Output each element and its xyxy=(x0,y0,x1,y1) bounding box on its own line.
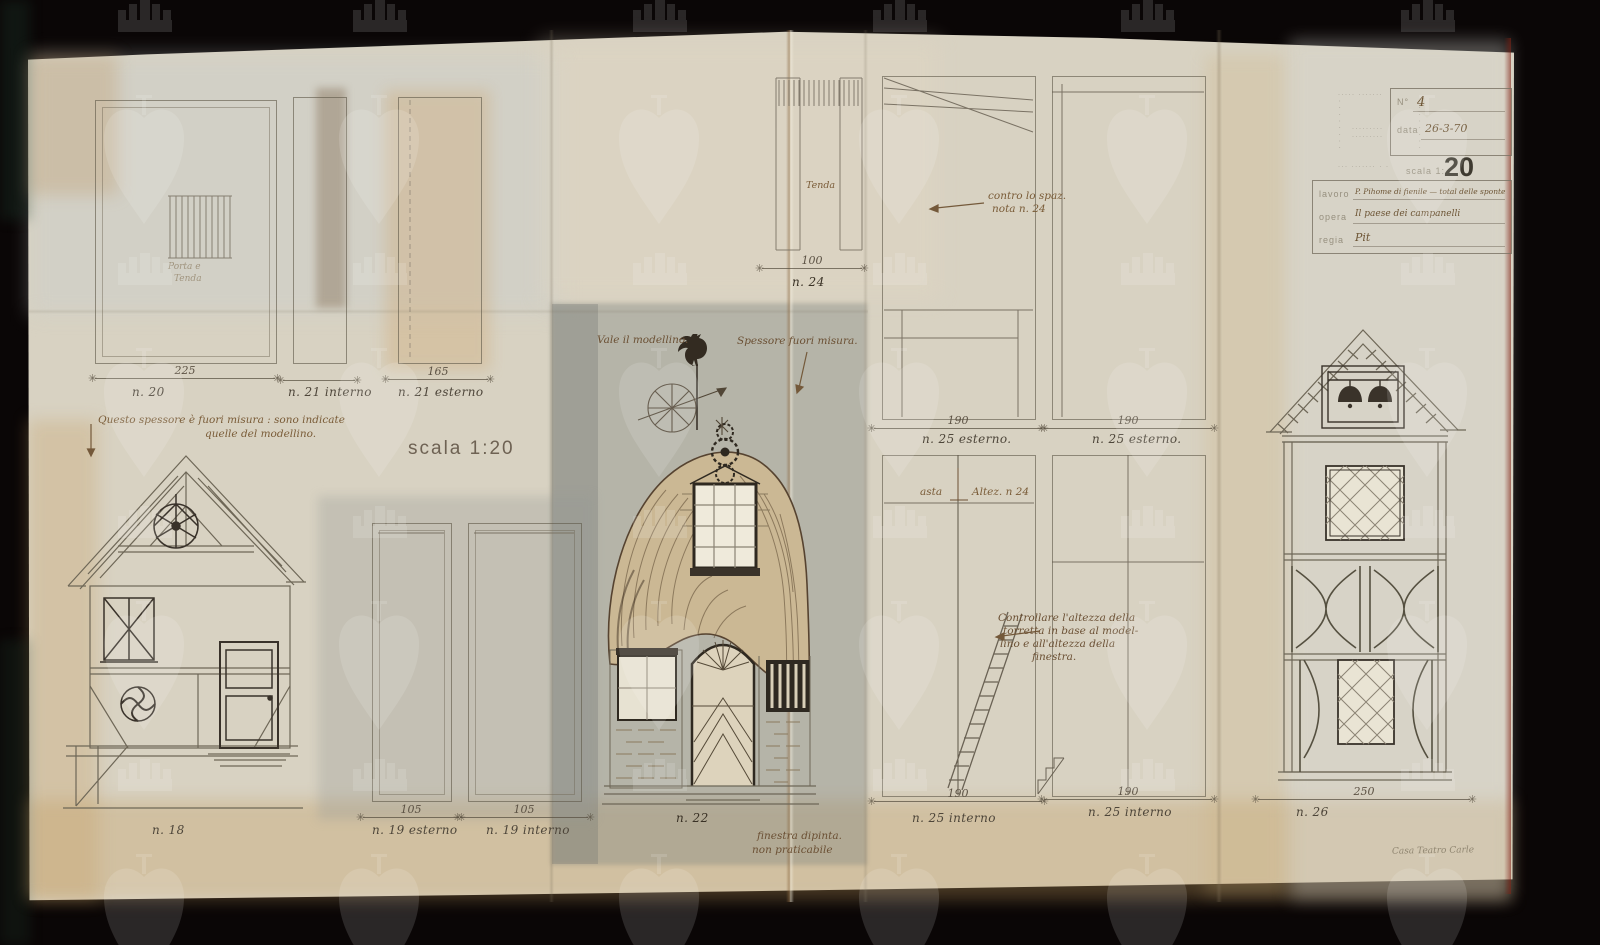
note-contro-2: nota n. 24 xyxy=(992,203,1046,216)
date-label: data xyxy=(1397,125,1419,135)
label-n19-esterno: n. 19 esterno xyxy=(372,824,458,837)
work-field-value: Il paese dei campanelli xyxy=(1355,209,1460,219)
panel-n20 xyxy=(95,100,277,364)
house-elevation-n26-drawing xyxy=(1264,324,1470,802)
dimension-n25i2: 190 xyxy=(1044,799,1212,800)
label-n25-esterno-1: n. 25 esterno. xyxy=(922,433,1012,446)
note-porta-2: Tenda xyxy=(174,274,202,285)
work-field-label: regia xyxy=(1319,235,1344,245)
titleblock-scale-label: scala 1: xyxy=(1406,166,1445,176)
rule xyxy=(1421,139,1505,140)
dimension-n24: 100 xyxy=(762,268,862,269)
label-n25-interno-2: n. 25 interno xyxy=(1088,806,1172,819)
work-field-label: lavoro xyxy=(1319,189,1350,199)
label-n26: n. 26 xyxy=(1296,806,1329,819)
date-value: 26-3-70 xyxy=(1425,122,1467,135)
dimension-n21e: 165 xyxy=(388,379,488,380)
scanned-drawing-page: { "titleblock": { "stamp": { "top": "···… xyxy=(0,0,1600,945)
number-value: 4 xyxy=(1417,95,1425,110)
panel-n25-esterno-1 xyxy=(882,76,1036,420)
number-label: N° xyxy=(1397,97,1409,107)
note-porta-1: Porta e xyxy=(168,262,201,273)
rule xyxy=(1413,111,1505,112)
label-n22: n. 22 xyxy=(676,812,709,825)
label-n19-interno: n. 19 interno xyxy=(486,824,570,837)
note-controllare-3: lino e all'altezza della xyxy=(1000,638,1115,651)
label-n18: n. 18 xyxy=(152,824,185,837)
label-n25-interno-1: n. 25 interno xyxy=(912,812,996,825)
note-finestra-2: non praticabile xyxy=(752,844,833,857)
panel-n21-esterno xyxy=(398,97,482,364)
dimension-n19e: 105 xyxy=(363,817,459,818)
rule xyxy=(1353,199,1505,200)
panel-n19e-inner-line xyxy=(379,530,445,795)
panel-n25-esterno-2 xyxy=(1052,76,1206,420)
note-spessore-left-2: quelle del modellino. xyxy=(205,428,316,441)
dimension-n26: 250 xyxy=(1258,799,1470,800)
label-n20: n. 20 xyxy=(132,386,165,399)
panel-n20-inner-line xyxy=(102,107,270,357)
stamp-line: · · · · · · · · xyxy=(1336,100,1342,162)
note-controllare-4: finestra. xyxy=(1032,651,1076,664)
stamp-line: ········· xyxy=(1352,134,1383,140)
work-field-value: P. Pihome di fienile — total delle spont… xyxy=(1355,187,1505,196)
panel-n19i-inner-line xyxy=(475,530,575,795)
stamp-line: ··· ······· · · xyxy=(1338,164,1389,170)
titleblock-scale-value: 20 xyxy=(1444,152,1474,183)
dimension-n19i: 105 xyxy=(460,817,588,818)
label-n24: n. 24 xyxy=(792,276,825,289)
note-asta: asta xyxy=(920,486,942,499)
label-n21-esterno: n. 21 esterno xyxy=(398,386,484,399)
rule xyxy=(1353,223,1505,224)
work-field-value: Pit xyxy=(1355,231,1370,244)
scale-note: scala 1:20 xyxy=(408,438,515,460)
dimension-n20: 225 xyxy=(95,378,275,379)
note-vale-modellino: Vale il modellino. xyxy=(597,334,688,347)
dimension-n25e1: 190 xyxy=(874,428,1042,429)
panel-n21-interno xyxy=(293,97,347,364)
note-controllare-1: Controllare l'altezza della xyxy=(998,612,1135,625)
work-field-label: opera xyxy=(1319,212,1347,222)
panel-n19-esterno xyxy=(372,523,452,802)
label-n21-interno: n. 21 interno xyxy=(288,386,372,399)
note-tenda-n24: Tenda xyxy=(806,180,835,192)
note-spessore-left-1: Questo spessore è fuori misura : sono in… xyxy=(98,414,345,427)
dimension-n25i1: 190 xyxy=(874,801,1042,802)
house-elevation-n18-drawing xyxy=(58,446,316,822)
cottage-elevation-n22-drawing xyxy=(594,334,836,820)
panel-n19-interno xyxy=(468,523,582,802)
note-spessore-right: Spessore fuori misura. xyxy=(737,335,858,348)
rule xyxy=(1353,246,1505,247)
signature: Casa Teatro Carle xyxy=(1392,845,1474,856)
dimension-n21i xyxy=(283,380,355,381)
note-finestra-1: finestra dipinta. xyxy=(757,830,842,843)
label-n25-esterno-2: n. 25 esterno. xyxy=(1092,433,1182,446)
note-altezza: Altez. n 24 xyxy=(972,486,1029,499)
note-controllare-2: torretta in base al model- xyxy=(1003,625,1138,638)
dimension-n25e2: 190 xyxy=(1044,428,1212,429)
number-date-box: N° 4 data 26-3-70 xyxy=(1390,88,1512,156)
note-contro-1: contro lo spaz. xyxy=(988,190,1066,203)
stamp-line: ········· xyxy=(1352,126,1383,132)
work-box: lavoro P. Pihome di fienile — total dell… xyxy=(1312,180,1512,254)
stamp-line: ····· ······· xyxy=(1338,92,1383,98)
